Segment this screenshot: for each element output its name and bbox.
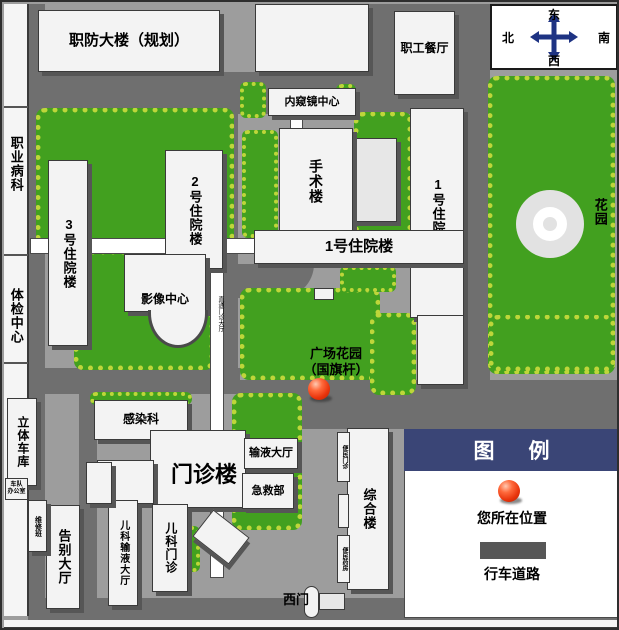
building-label: 急救部 (252, 485, 285, 498)
legend-road-label: 行车道路 (432, 564, 592, 584)
legend-location-marker-icon (498, 480, 520, 502)
building-maintenance: 维修班 (28, 500, 47, 552)
building-inpatient-1-wing: 1号住院楼 (254, 230, 464, 264)
compass-south-label: 南 (598, 29, 610, 46)
building-parking-garage: 立体车库 (7, 398, 37, 486)
building-convenience-pharmacy: 便民药房 (337, 535, 350, 583)
lawn-surgery-west (242, 130, 278, 238)
location-marker-icon (308, 378, 330, 400)
building-label: 职防大楼（规划） (69, 32, 189, 49)
building-label: 内窥镜中心 (285, 96, 340, 109)
wall-divider (4, 362, 28, 364)
building-label: 维修班 (33, 516, 41, 537)
legend-header: 图例 (404, 429, 619, 471)
west-gate-bar (319, 593, 345, 610)
plaza-garden-label: 广场花园 （国旗杆） (284, 346, 388, 377)
building-label: 办公室 (7, 489, 25, 496)
building-label: 便民门诊 (340, 445, 347, 469)
building-label: 输液大厅 (249, 447, 293, 460)
hospital-campus-map: 直通门诊大厅 职业病科 体检中心 花园 职防大楼（规划） 职工餐厅 内窥镜中心 … (0, 0, 619, 630)
building-occupational-prevention: 职防大楼（规划） (38, 10, 220, 72)
lawn-endoscopy-west (240, 82, 266, 118)
building-south-unlabeled (417, 315, 464, 385)
corridor-label: 直通门诊大厅 (211, 296, 223, 360)
building-side-sliver (338, 494, 349, 528)
wall-divider (4, 106, 28, 108)
building-label: 立体车库 (15, 416, 29, 468)
building-inpatient-2: 2号住院楼 (165, 150, 223, 269)
building-label: 便民药房 (340, 547, 347, 571)
building-farewell-hall: 告别大厅 (46, 505, 80, 609)
building-label: 职工餐厅 (400, 42, 448, 56)
wall-divider (4, 254, 28, 256)
occupational-disease-dept-label: 职业病科 (5, 114, 27, 214)
building-inpatient-1-tower: 1号住院楼 (410, 108, 464, 318)
building-convenience-clinic: 便民门诊 (337, 432, 350, 482)
building-label: 1号住院楼 (325, 238, 393, 255)
building-label: 综合楼 (361, 488, 376, 530)
building-label: 影像中心 (141, 293, 189, 307)
building-label: 3号住院楼 (61, 217, 76, 289)
building-surgery-annex (350, 138, 397, 222)
fountain-ring-icon (533, 207, 567, 241)
building-label: 车队 (10, 482, 22, 489)
building-label: 儿科门诊 (163, 522, 177, 574)
road-west-horizontal (28, 368, 240, 394)
building-label: 告别大厅 (56, 529, 71, 585)
building-label: 手术楼 (308, 159, 324, 204)
building-endoscopy-center: 内窥镜中心 (268, 88, 356, 116)
plaza-garden-label-line1: 广场花园 (284, 346, 388, 362)
building-imaging-center: 影像中心 (124, 254, 206, 312)
west-gate-label: 西门 (283, 592, 319, 608)
outpatient-building-label: 门诊楼 (152, 462, 256, 488)
building-label: 儿科输液大厅 (117, 520, 129, 586)
building-label: 2号住院楼 (187, 174, 202, 246)
compass-east-label: 东 (490, 6, 618, 23)
lawn-southeast (489, 315, 615, 371)
building-inpatient-3: 3号住院楼 (48, 160, 88, 346)
plaza-garden-label-line2: （国旗杆） (284, 362, 388, 378)
lawn-wing-south (340, 266, 396, 292)
legend-marker-label: 您所在位置 (432, 508, 592, 528)
building-southwest-unlabeled (86, 462, 112, 504)
building-comprehensive: 综合楼 (347, 428, 389, 590)
building-fleet-office: 车队 办公室 (5, 478, 28, 500)
legend-title: 图例 (474, 435, 584, 465)
bottom-white-strip (4, 620, 617, 627)
building-staff-canteen: 职工餐厅 (394, 11, 455, 95)
compass-north-label: 北 (502, 29, 514, 46)
building-north-unlabeled (255, 4, 369, 72)
building-pediatric-outpatient: 儿科门诊 (152, 504, 188, 592)
flagpole-base (314, 288, 334, 300)
building-surgery: 手术楼 (279, 128, 353, 234)
physical-exam-center-label: 体检中心 (5, 270, 27, 362)
building-pediatric-infusion: 儿科输液大厅 (108, 500, 138, 606)
building-label: 感染科 (123, 413, 159, 427)
garden-label: 花园 (588, 198, 612, 254)
compass-west-label: 西 (490, 52, 618, 69)
legend-road-swatch (480, 542, 546, 559)
